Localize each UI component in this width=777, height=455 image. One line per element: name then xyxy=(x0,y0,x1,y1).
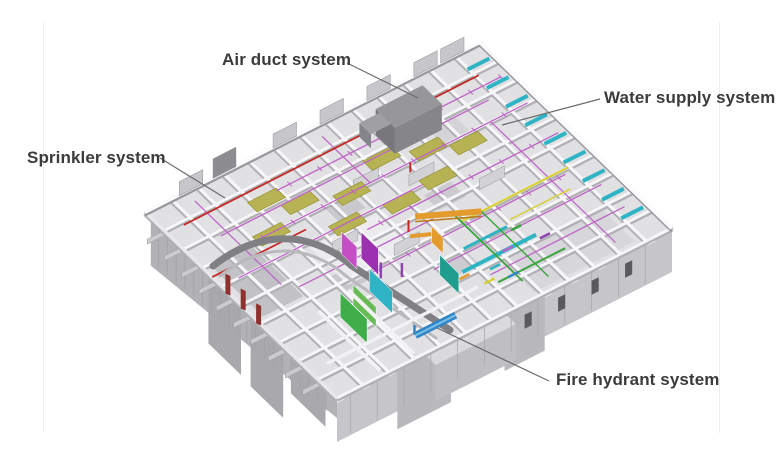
label-fire-hydrant-system: Fire hydrant system xyxy=(556,370,719,390)
label-air-duct-system: Air duct system xyxy=(222,50,351,70)
label-water-supply-system: Water supply system xyxy=(604,88,775,108)
figure-canvas: Air duct system Water supply system Spri… xyxy=(0,0,777,455)
label-sprinkler-system: Sprinkler system xyxy=(27,148,166,168)
